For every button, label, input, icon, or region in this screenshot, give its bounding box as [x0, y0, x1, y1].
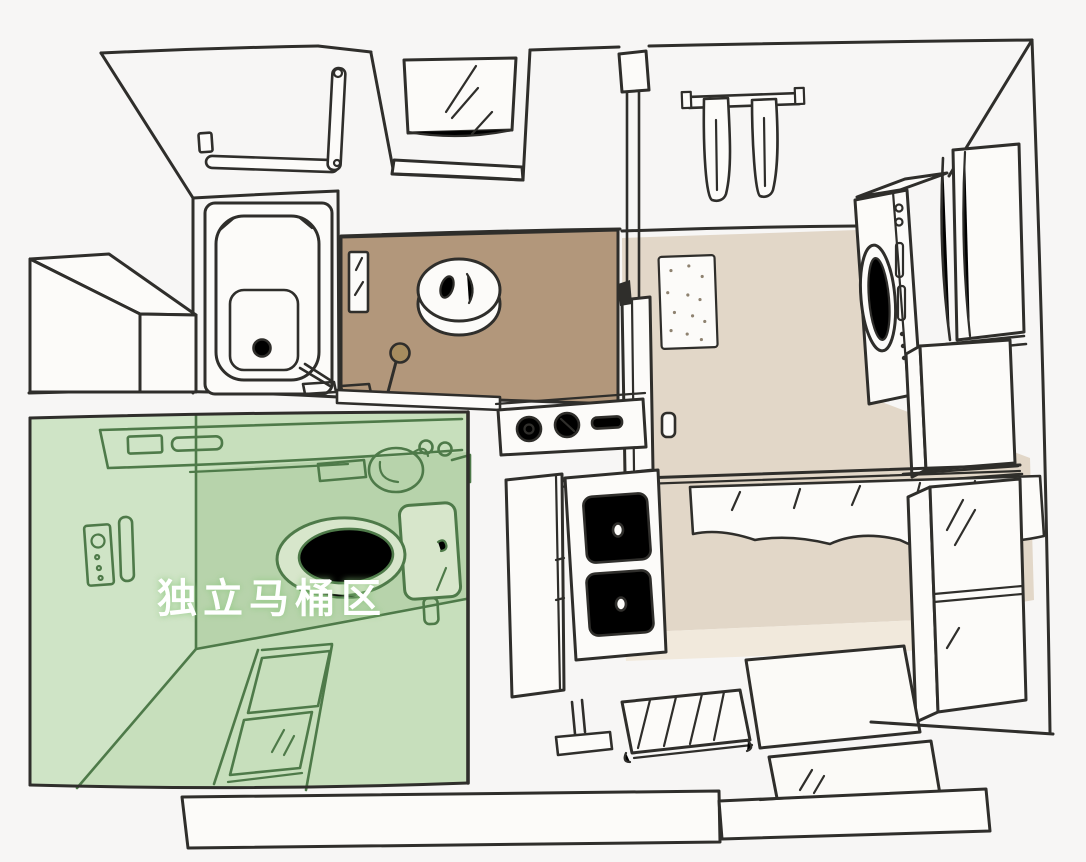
toilet-tank: [399, 502, 461, 600]
heater-slot: [592, 416, 623, 429]
storage-cabinet: [899, 340, 1022, 483]
display-cabinet: [908, 479, 1026, 722]
soap-dish: [198, 133, 212, 153]
tub-drain: [254, 340, 271, 357]
vanity-side-panel: [506, 474, 564, 697]
toilet-zone-label: 独立马桶区: [157, 576, 387, 622]
vanity-drawers: [565, 470, 666, 660]
drawer-knob: [613, 524, 623, 537]
window-glass: [404, 58, 516, 133]
bathroom-illustration: 独立马桶区 独立马桶区: [0, 0, 1086, 862]
sliding-door-handle: [662, 413, 675, 437]
bath-stool: [418, 259, 500, 335]
illustration-canvas: 独立马桶区 独立马桶区: [0, 0, 1086, 862]
drawer-knob: [616, 598, 626, 611]
wall-mirror-panel: [349, 252, 368, 312]
dotted-bath-mat: [658, 255, 717, 349]
